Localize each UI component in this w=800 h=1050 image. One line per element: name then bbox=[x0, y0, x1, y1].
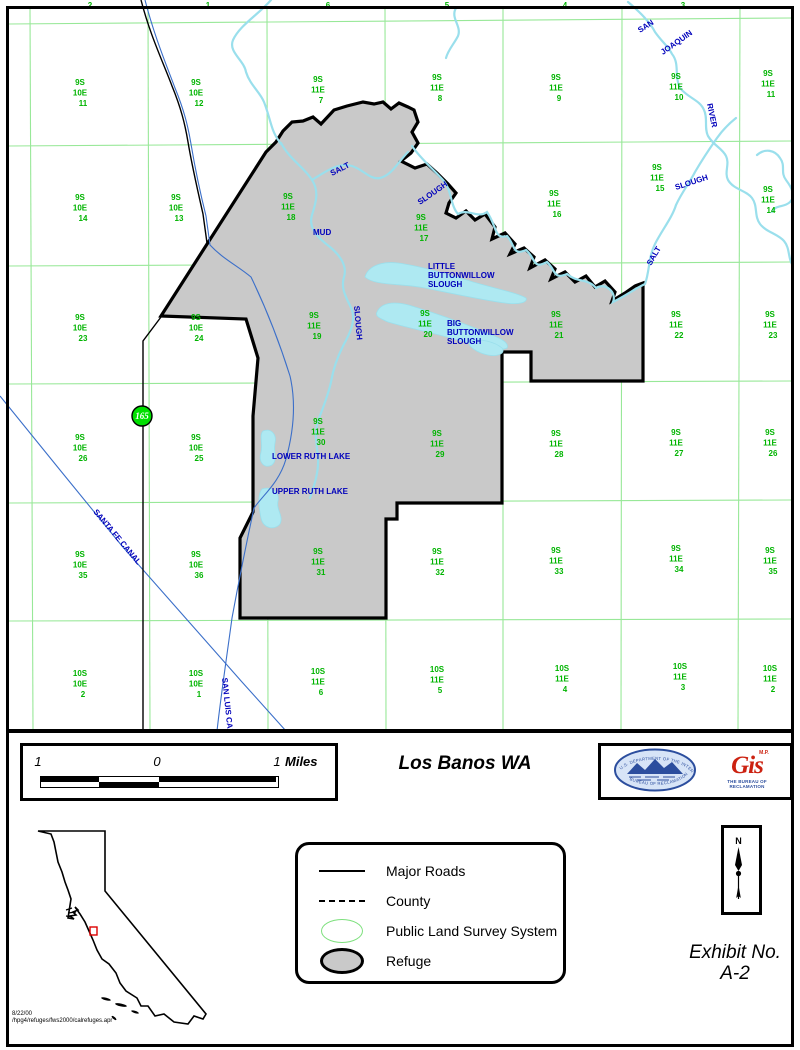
legend-label: Public Land Survey System bbox=[386, 923, 557, 939]
plss-section-label: 9S11E22 bbox=[669, 310, 684, 340]
plss-section-label: 9S10E26 bbox=[73, 433, 88, 463]
north-arrow-box: N bbox=[721, 825, 762, 915]
scale-bar bbox=[40, 776, 279, 788]
legend-label: Major Roads bbox=[386, 863, 465, 879]
plss-section-label: 9S10E12 bbox=[189, 78, 204, 108]
plss-section-label: 9S11E7 bbox=[311, 75, 325, 105]
plss-section-label: 9S11E33 bbox=[549, 546, 564, 576]
legend-item: Major Roads bbox=[298, 856, 563, 886]
plss-section-label: 9S10E35 bbox=[73, 550, 88, 580]
plss-section-label: 9S10E25 bbox=[189, 433, 204, 463]
slough-fragment bbox=[446, 8, 459, 58]
water-label: SAN LUIS CANAL bbox=[220, 677, 236, 733]
bureau-of-reclamation-seal: U.S. DEPARTMENT OF THE INTERIOR BUREAU O… bbox=[603, 747, 713, 792]
plss-section-label: 10S10E1 bbox=[189, 669, 204, 699]
water-label: MUD bbox=[313, 228, 331, 237]
scale-left-label: 1 bbox=[27, 754, 49, 769]
plss-section-label: 9S11E9 bbox=[549, 73, 563, 103]
water-label: SANTA FE CANAL bbox=[91, 508, 143, 567]
plss-section-label: 10S11E6 bbox=[311, 667, 326, 697]
legend-symbol-line bbox=[319, 870, 365, 872]
legend-box: Major RoadsCountyPublic Land Survey Syst… bbox=[295, 842, 566, 984]
plss-section-label: 10S11E2 bbox=[763, 664, 778, 694]
legend-item: Refuge bbox=[298, 946, 563, 976]
plss-section-label: 9S11E26 bbox=[763, 428, 778, 458]
map-canvas: 165 9S10E119S10E129S11E79S11E89S11E99S11… bbox=[0, 0, 800, 733]
plss-section-label: 10S11E3 bbox=[673, 662, 688, 692]
plss-section-label: 9S11E16 bbox=[547, 189, 562, 219]
plss-section-label: 9S11E35 bbox=[763, 546, 778, 576]
water-label: SALT bbox=[645, 245, 663, 267]
scale-unit-label: Miles bbox=[285, 754, 318, 769]
north-label: N bbox=[735, 836, 742, 846]
san-joaquin-river bbox=[628, 2, 792, 264]
legend-label: Refuge bbox=[386, 953, 431, 969]
plss-section-label: 10S11E4 bbox=[555, 664, 570, 694]
plss-section-label: 9S11E10 bbox=[669, 72, 684, 102]
legend-symbol-dash bbox=[319, 900, 365, 902]
water-label: SAN bbox=[636, 18, 655, 35]
gis-logo-text: Gis bbox=[713, 755, 781, 777]
plss-section-label: 9S10E11 bbox=[73, 78, 88, 108]
plss-section-label: 10S11E5 bbox=[430, 665, 445, 695]
route-165-road bbox=[143, 317, 161, 731]
legend-symbol-gray-ellipse bbox=[320, 948, 364, 974]
plss-section-label: 9S10E36 bbox=[189, 550, 204, 580]
plss-section-label: 9S11E11 bbox=[761, 69, 776, 99]
plss-section-label: 9S11E28 bbox=[549, 429, 564, 459]
scale-bar-box: 1 0 1 Miles bbox=[20, 743, 338, 801]
mp-gis-logo: M.P. Gis THE BUREAU OF RECLAMATION bbox=[713, 751, 781, 789]
map-sheet: 165 9S10E119S10E129S11E79S11E89S11E99S11… bbox=[0, 0, 800, 1050]
plss-section-label: 9S10E13 bbox=[169, 193, 184, 223]
plss-section-label: 9S10E14 bbox=[73, 193, 88, 223]
exhibit-line1: Exhibit No. bbox=[655, 942, 800, 963]
scale-mid-label: 0 bbox=[146, 754, 168, 769]
plss-section-label: 9S11E15 bbox=[650, 163, 665, 193]
plss-section-label: 9S10E23 bbox=[73, 313, 88, 343]
water-label: RIVER bbox=[705, 103, 719, 129]
legend-label: County bbox=[386, 893, 430, 909]
plss-section-label: 9S11E14 bbox=[761, 185, 776, 215]
highway-shield-number: 165 bbox=[135, 411, 149, 421]
legend-items: Major RoadsCountyPublic Land Survey Syst… bbox=[298, 856, 563, 976]
water-label: UPPER RUTH LAKE bbox=[272, 487, 349, 496]
agency-logo-box: U.S. DEPARTMENT OF THE INTERIOR BUREAU O… bbox=[598, 743, 793, 800]
credit-date: 8/22/00 bbox=[12, 1011, 112, 1018]
map-title: Los Banos WA bbox=[350, 753, 580, 775]
plss-section-label: 9S11E32 bbox=[430, 547, 445, 577]
highway-165-shield: 165 bbox=[132, 406, 152, 426]
exhibit-line2: A-2 bbox=[655, 963, 800, 984]
gis-logo-caption: THE BUREAU OF RECLAMATION bbox=[713, 779, 781, 789]
exhibit-number: Exhibit No. A-2 bbox=[655, 942, 800, 984]
refuge-area bbox=[161, 102, 643, 618]
california-inset-map bbox=[18, 822, 218, 1027]
legend-item: County bbox=[298, 886, 563, 916]
legend-symbol-green-ellipse bbox=[321, 919, 363, 943]
water-label: SLOUGH bbox=[674, 173, 710, 192]
plss-section-label: 9S11E8 bbox=[430, 73, 444, 103]
legend-item: Public Land Survey System bbox=[298, 916, 563, 946]
water-label: LOWER RUTH LAKE bbox=[272, 452, 351, 461]
plss-section-label: 9S11E27 bbox=[669, 428, 684, 458]
credits: 8/22/00 /hpg4/refuges/fws2000/calrefuges… bbox=[12, 1011, 112, 1025]
plss-section-label: 10S10E2 bbox=[73, 669, 88, 699]
north-arrow-icon: N bbox=[724, 828, 753, 906]
plss-section-label: 9S11E23 bbox=[763, 310, 778, 340]
plss-section-label: 9S11E34 bbox=[669, 544, 684, 574]
panel-divider bbox=[6, 729, 794, 733]
credit-path: /hpg4/refuges/fws2000/calrefuges.apr bbox=[12, 1018, 112, 1025]
california-outline bbox=[38, 831, 206, 1024]
